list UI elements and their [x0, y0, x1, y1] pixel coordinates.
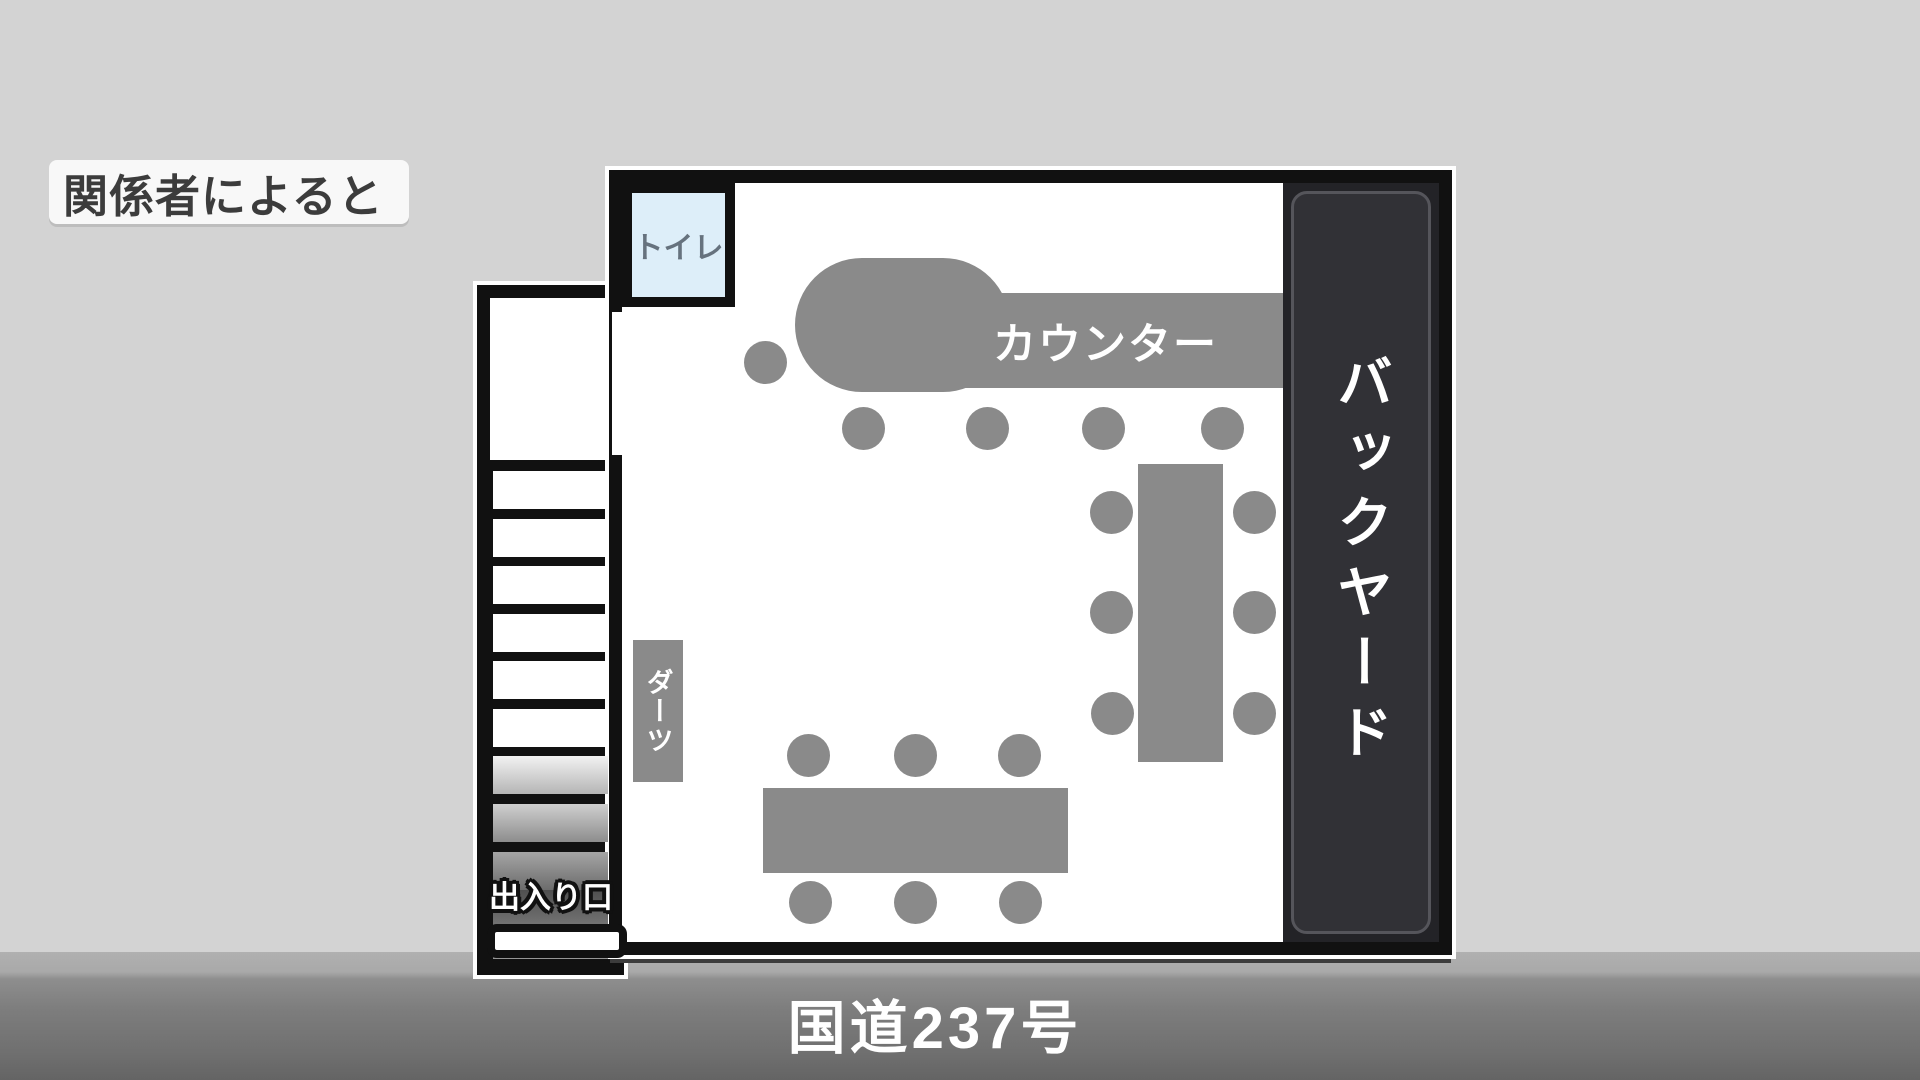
stool: [744, 341, 787, 384]
toilet-label: トイレ: [634, 223, 724, 267]
stool: [894, 734, 937, 777]
stair-step: [493, 661, 608, 699]
stair-step: [493, 566, 608, 604]
stool: [1090, 491, 1133, 534]
stair-step: [493, 709, 608, 747]
stool: [966, 407, 1009, 450]
news-floorplan-graphic: 国道237号 関係者によると トイレ バックヤード カウンター ダーツ 出入り口: [0, 0, 1920, 1080]
stair-step: [493, 519, 608, 557]
counter-label: カウンター: [993, 310, 1218, 372]
stool: [787, 734, 830, 777]
stool: [1233, 692, 1276, 735]
stair-step: [493, 804, 608, 842]
stool: [1201, 407, 1244, 450]
counter: カウンター: [928, 293, 1283, 388]
stool: [1082, 407, 1125, 450]
attribution-chip: 関係者によると: [49, 160, 409, 224]
stair-step: [493, 756, 608, 794]
attribution-text: 関係者によると: [63, 160, 384, 225]
stool: [1091, 692, 1134, 735]
backyard-label: バックヤード: [1321, 353, 1402, 773]
wall-opening: [612, 312, 624, 455]
stool: [998, 734, 1041, 777]
stool: [1090, 591, 1133, 634]
stool: [1233, 491, 1276, 534]
stair-step: [493, 614, 608, 652]
darts-area: ダーツ: [633, 640, 683, 782]
stool: [1233, 591, 1276, 634]
entrance-door: [487, 924, 627, 958]
stool: [842, 407, 885, 450]
stool: [789, 881, 832, 924]
table-right: [1138, 464, 1223, 762]
backyard-panel: バックヤード: [1291, 191, 1431, 934]
darts-label: ダーツ: [639, 668, 678, 755]
entrance-label: 出入り口: [486, 872, 616, 917]
stair-step: [493, 471, 608, 509]
road-label: 国道237号: [0, 981, 1870, 1065]
toilet-room: トイレ: [622, 183, 735, 307]
table-bottom: [763, 788, 1068, 873]
stool: [999, 881, 1042, 924]
stool: [894, 881, 937, 924]
